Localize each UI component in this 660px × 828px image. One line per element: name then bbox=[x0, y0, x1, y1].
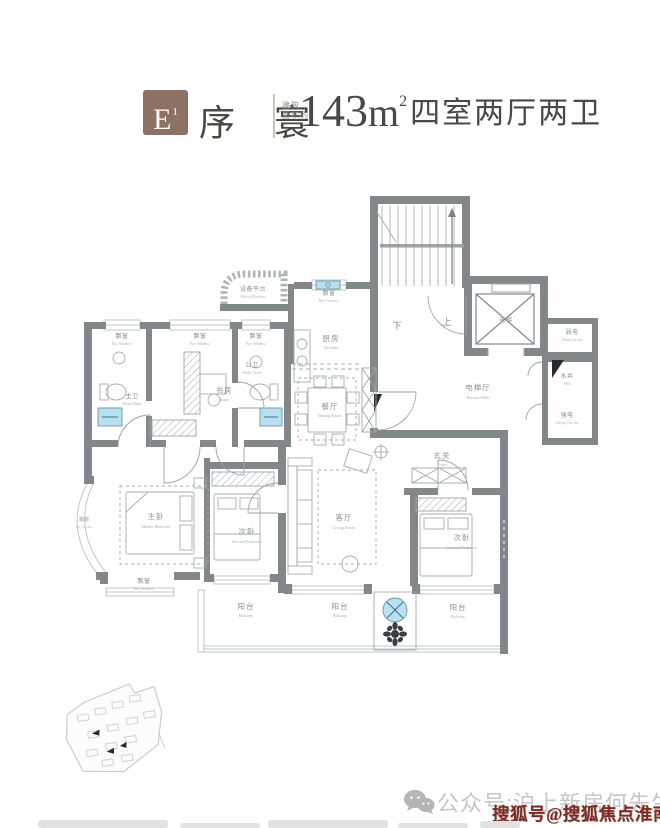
label-bay-window-en: Bay Window bbox=[112, 342, 132, 346]
label-dining-en: Dining Room bbox=[318, 413, 342, 418]
site-plan-thumbnail bbox=[58, 680, 178, 785]
label-balcony-zh: 阳台 bbox=[238, 601, 255, 611]
label-device-platform-en: Device Platform bbox=[241, 295, 266, 299]
wechat-icon bbox=[403, 789, 435, 816]
label-bay-window-en: Bay Window bbox=[319, 299, 339, 303]
label-dining-zh: 餐厅 bbox=[322, 402, 339, 411]
label-stair-down: 下 bbox=[392, 321, 401, 331]
next-image-sliver bbox=[180, 823, 260, 828]
label-bay-window-en: Bay Window bbox=[246, 342, 266, 346]
label-second-bedroom-en: Second Bedroom bbox=[232, 539, 262, 544]
next-image-sliver bbox=[268, 820, 388, 828]
label-foyer-zh: 玄关 bbox=[434, 450, 451, 460]
label-study-en: Study bbox=[219, 397, 230, 402]
label-living-zh: 客厅 bbox=[336, 512, 353, 522]
label-study-zh: 书房 bbox=[216, 385, 233, 395]
label-water-well-zh: 水井 bbox=[560, 372, 573, 380]
floorplan-post: E1 序 寰 建筑 面积约 143m2四室两厅两卫 bbox=[0, 0, 660, 828]
floor-plan: 设备平台 Device Platform 飘窗 Bay Window 飘窗 Ba… bbox=[0, 0, 660, 660]
label-bay-window-en: Bay Window bbox=[134, 587, 154, 591]
label-strong-current-en: Strong Current bbox=[556, 421, 580, 425]
staircase bbox=[377, 206, 464, 286]
label-strong-current-zh: 强电 bbox=[560, 411, 573, 419]
label-second-bedroom-zh: 次卧 bbox=[454, 532, 471, 542]
label-bay-window-zh: 飘窗 bbox=[115, 332, 128, 340]
label-master-bedroom-en: Master Bedroom bbox=[142, 524, 172, 529]
next-image-sliver bbox=[398, 823, 468, 828]
label-foyer-en: Foyer bbox=[437, 462, 448, 467]
label-living-en: Living Room bbox=[332, 525, 356, 530]
label-elevator-zh: 电梯 bbox=[499, 316, 512, 324]
label-stair-up: 上 bbox=[442, 317, 451, 327]
label-weak-current-zh: 弱电 bbox=[565, 328, 578, 336]
label-bay-window-zh: 飘窗 bbox=[137, 577, 150, 585]
label-bay-window-zh: 飘窗 bbox=[193, 332, 206, 340]
label-public-toilet-zh: 公卫 bbox=[245, 362, 258, 369]
label-bay-window-en: Bay Window bbox=[76, 525, 93, 529]
label-second-bedroom-zh: 次卧 bbox=[239, 526, 256, 536]
label-second-bedroom-en: Second Bedroom bbox=[447, 545, 477, 550]
label-balcony-en: Balcony bbox=[239, 613, 254, 618]
label-bay-window-zh: 飘窗 bbox=[322, 289, 335, 297]
label-elevator-hall-zh: 电梯厅 bbox=[465, 382, 491, 392]
label-bay-window-en: Bay Window bbox=[190, 342, 210, 346]
label-public-toilet-en: Public Toilet bbox=[242, 371, 262, 375]
label-kitchen-en: Kitchen bbox=[324, 345, 338, 350]
next-image-sliver bbox=[480, 821, 520, 828]
label-balcony-zh: 阳台 bbox=[332, 601, 349, 611]
label-balcony-en: Balcony bbox=[451, 614, 466, 619]
label-bay-window-zh: 飘窗 bbox=[249, 332, 262, 340]
label-weak-current-en: Weak Current bbox=[561, 338, 583, 342]
label-master-bath-zh: 主卫 bbox=[125, 392, 138, 400]
planter-plant bbox=[383, 622, 407, 646]
label-master-bedroom-zh: 主卧 bbox=[148, 511, 165, 521]
label-water-well-en: Well bbox=[563, 382, 570, 386]
blue-fixtures bbox=[98, 281, 407, 622]
label-bay-window-zh: 飘窗 bbox=[79, 516, 89, 523]
label-balcony-zh: 阳台 bbox=[450, 602, 467, 612]
label-master-bath-en: Master Bath bbox=[123, 402, 142, 406]
label-device-platform-zh: 设备平台 bbox=[240, 285, 266, 293]
label-balcony-en: Balcony bbox=[333, 613, 348, 618]
next-image-sliver bbox=[38, 820, 168, 828]
label-kitchen-zh: 厨房 bbox=[323, 333, 340, 343]
label-elevator-hall-en: Elevator Hall bbox=[466, 395, 490, 400]
